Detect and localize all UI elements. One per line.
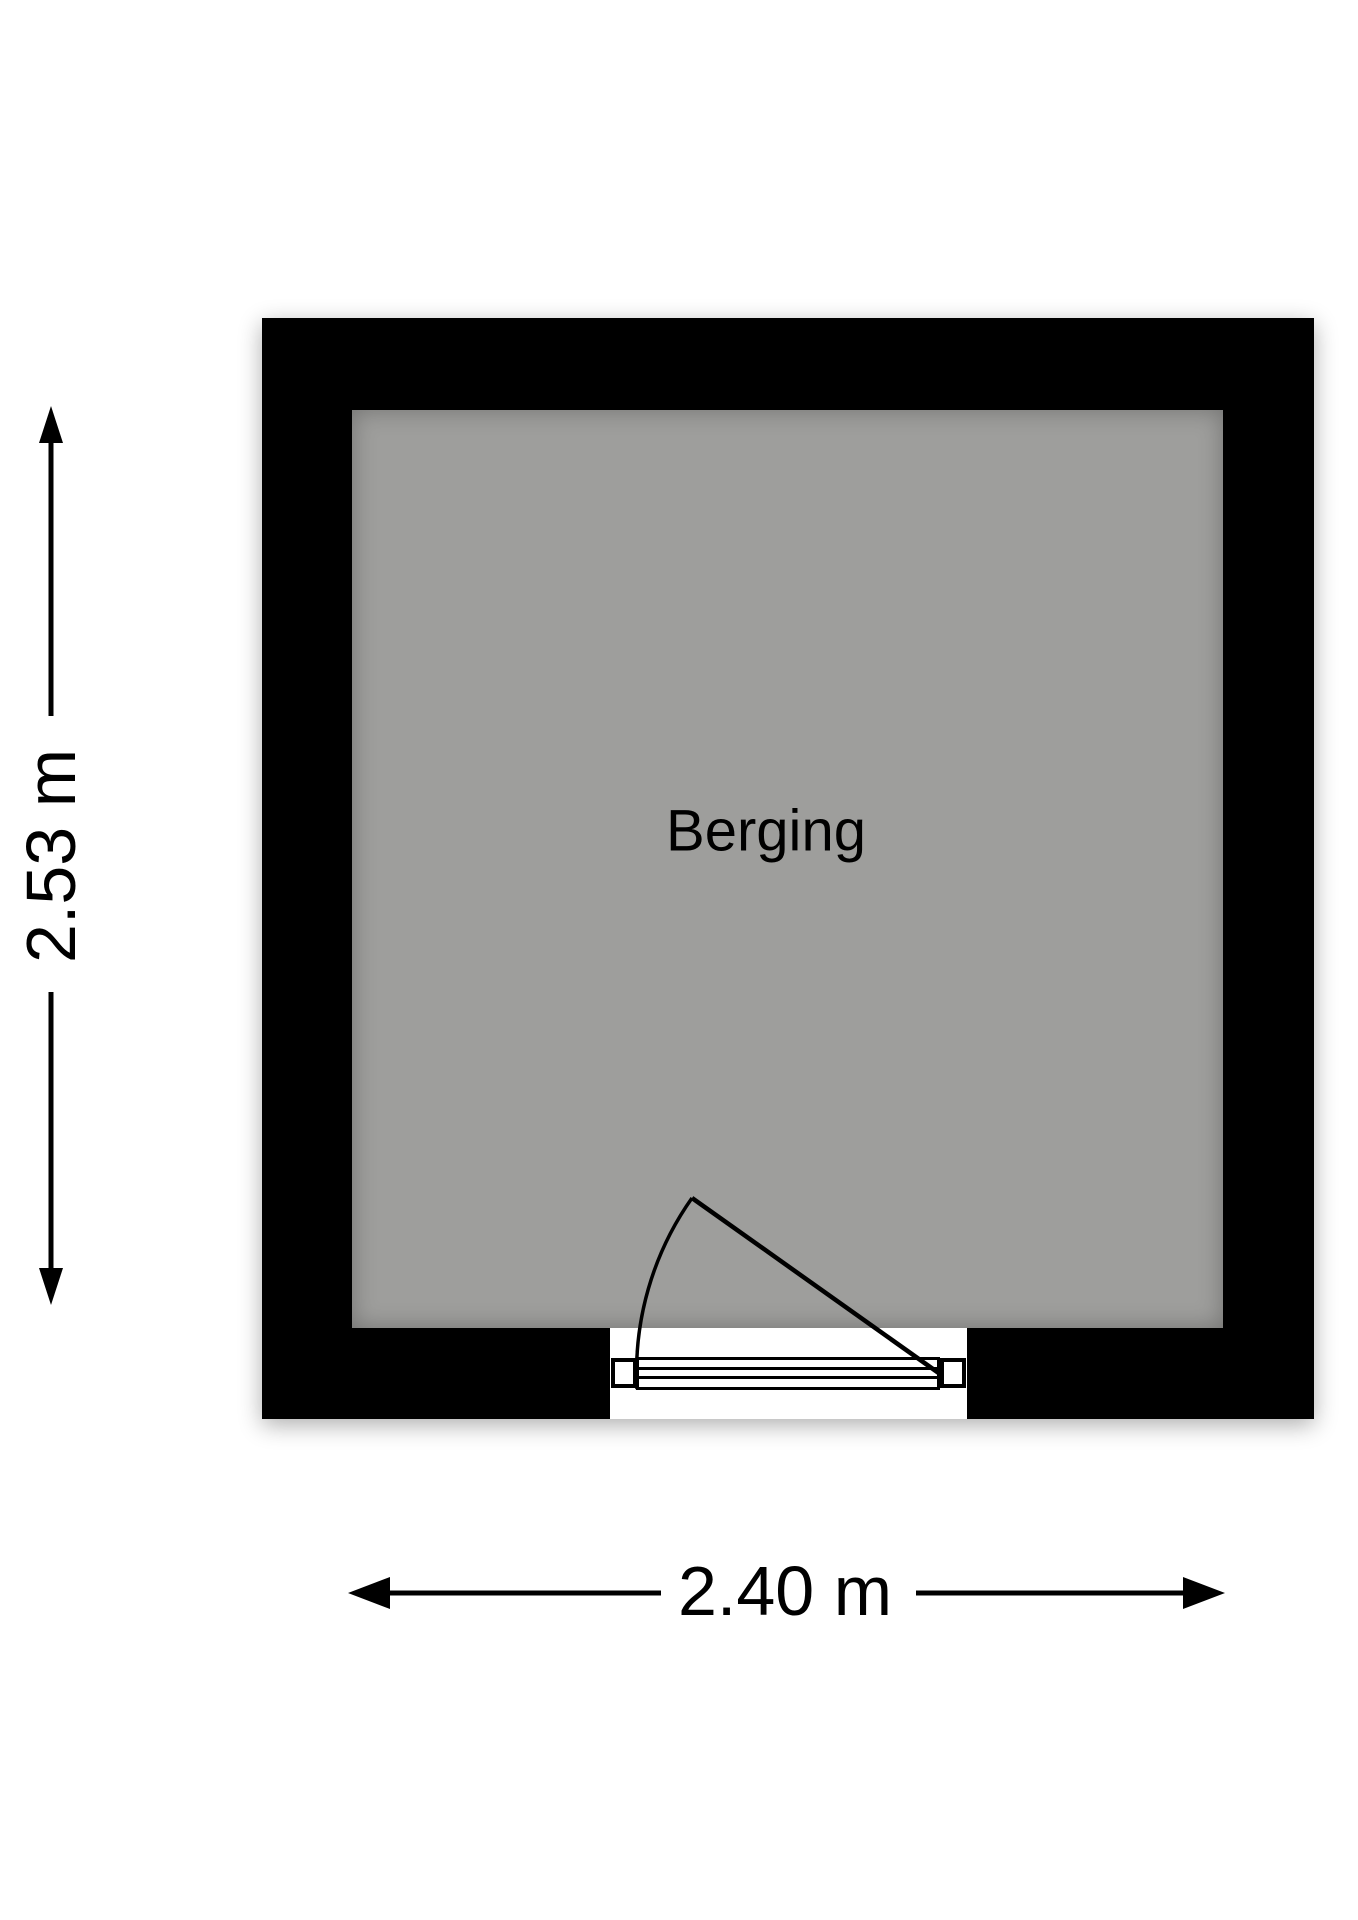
door-threshold — [636, 1357, 940, 1390]
threshold-line — [639, 1367, 937, 1370]
door-jamb-right — [940, 1358, 966, 1388]
floor-plan-page: { "floorplan": { "room_label": "Berging"… — [0, 0, 1358, 1920]
floor-plan: Berging 2.53 m 2.40 m — [0, 0, 1358, 1920]
vertical-dimension-label: 2.53 m — [11, 749, 91, 963]
room-floor — [352, 410, 1223, 1328]
room-name-label: Berging — [666, 798, 866, 865]
threshold-line — [639, 1376, 937, 1379]
horizontal-dimension-label: 2.40 m — [678, 1551, 892, 1631]
door-jamb-left — [611, 1358, 637, 1388]
